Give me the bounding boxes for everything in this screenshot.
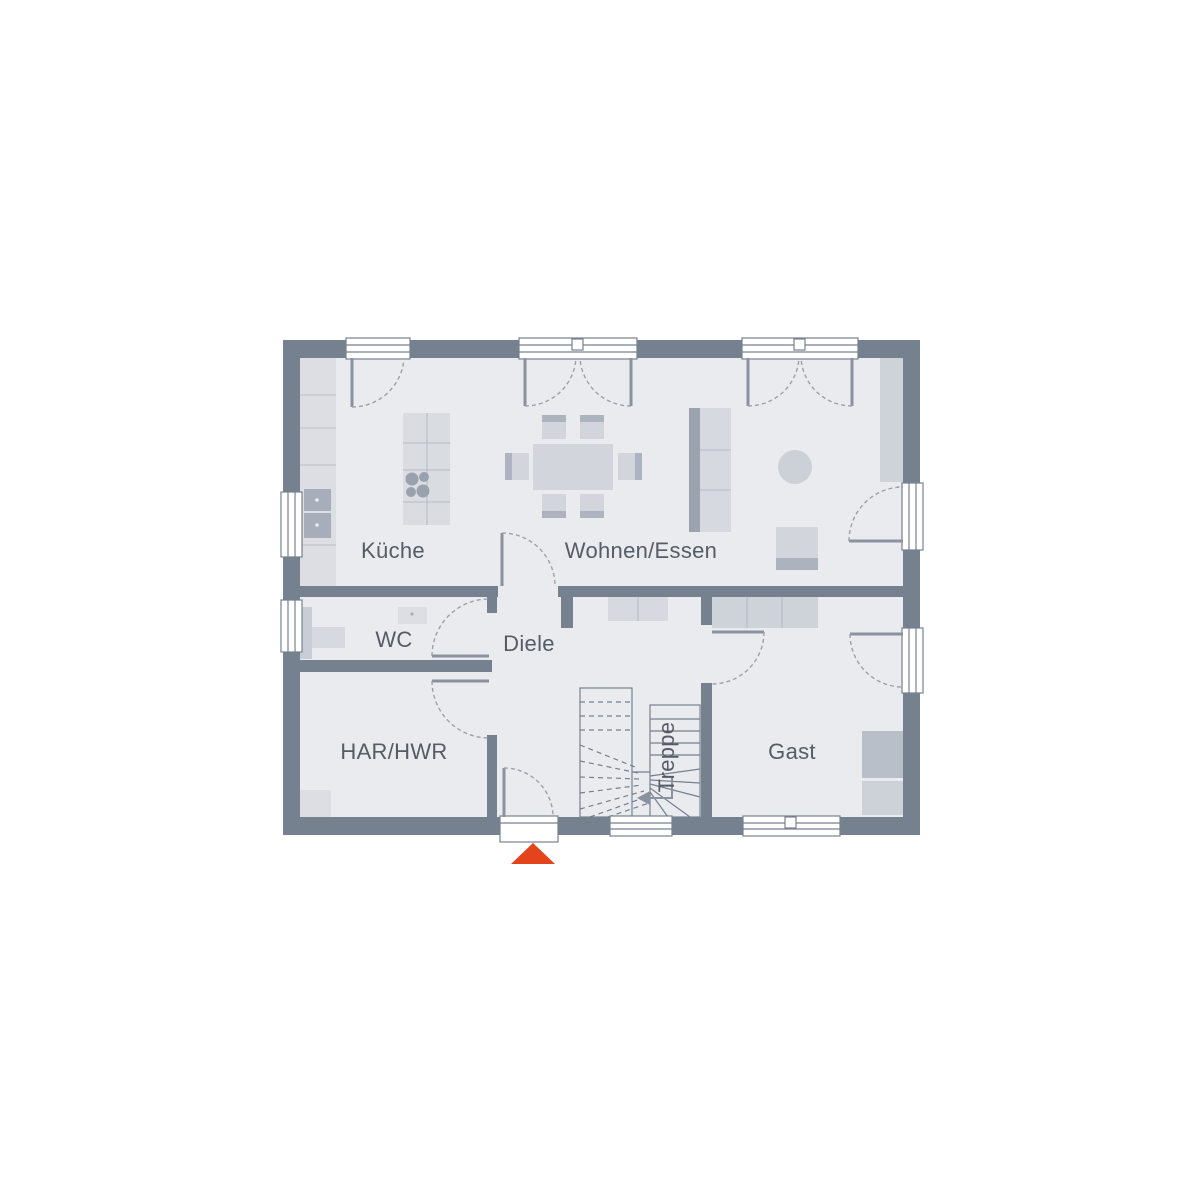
window-kitchen-left [281, 492, 302, 557]
room-label-treppe: Treppe [654, 722, 680, 793]
room-label-har-hwr: HAR/HWR [340, 739, 447, 765]
kitchen-island [403, 413, 450, 525]
terrace-door-living-right [902, 483, 923, 550]
floorplan-drawing [0, 0, 1200, 1200]
shelf-unit [689, 408, 731, 532]
coffee-table [778, 450, 812, 484]
entrance-door-sill [500, 816, 558, 842]
window-wc-left [281, 600, 302, 652]
dining-table [533, 444, 613, 490]
bed-guest [862, 731, 903, 815]
storage-box [300, 790, 331, 817]
room-label-wohnen-essen: Wohnen/Essen [565, 538, 717, 564]
wc-toilet [398, 607, 427, 624]
terrace-door-guest-right [902, 628, 923, 693]
window-guest-bottom [743, 816, 840, 836]
room-label-diele: Diele [503, 631, 555, 657]
french-door-dining [519, 338, 637, 359]
room-label-kueche: Küche [361, 538, 425, 564]
sideboard-livingroom [880, 358, 903, 482]
floorplan-canvas: Küche Wohnen/Essen WC Diele HAR/HWR Gast… [0, 0, 1200, 1200]
french-door-living [742, 338, 858, 359]
kitchen-counter [300, 358, 336, 586]
entrance-marker-icon [511, 843, 555, 864]
window-kitchen-top [346, 338, 410, 359]
sideboard-hall [608, 597, 668, 621]
wardrobe-guest [712, 597, 818, 628]
room-label-wc: WC [375, 627, 412, 653]
armchair [776, 527, 818, 570]
room-label-gast: Gast [768, 739, 816, 765]
window-stairs-bottom [610, 816, 672, 836]
